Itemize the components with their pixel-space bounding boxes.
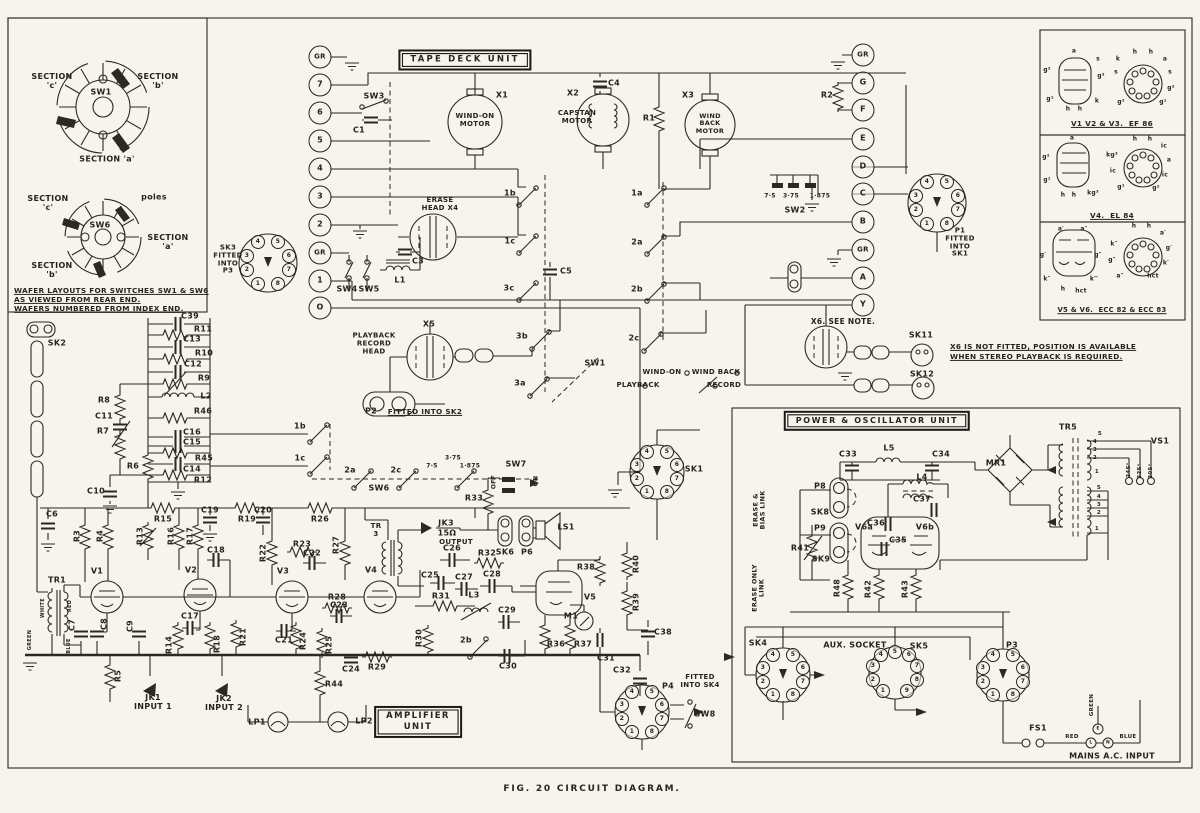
component-label: g¹ bbox=[1043, 178, 1051, 185]
component-label: 3 bbox=[866, 659, 880, 673]
component-label: C32 bbox=[613, 667, 631, 676]
component-label: hct bbox=[1075, 289, 1087, 296]
component-label: L4 bbox=[916, 474, 927, 483]
component-label: 2c bbox=[391, 467, 402, 476]
component-label: SECTION 'a' bbox=[79, 156, 134, 165]
component-label: R25 bbox=[326, 636, 335, 654]
component-label: poles bbox=[141, 194, 167, 203]
component-label: ic bbox=[1161, 144, 1167, 151]
component-label: C18 bbox=[207, 547, 225, 556]
component-label: PLAYBACK bbox=[616, 382, 659, 390]
component-label: ON bbox=[534, 476, 541, 487]
component-label: GR bbox=[309, 46, 332, 69]
component-label: R22 bbox=[260, 544, 269, 562]
component-label: R21 bbox=[240, 628, 249, 646]
component-label: SECTION 'a' bbox=[147, 234, 188, 252]
component-label: C7 bbox=[69, 619, 78, 631]
component-label: R12 bbox=[194, 477, 212, 486]
component-label: C28 bbox=[483, 571, 501, 580]
component-label: WAFER LAYOUTS FOR SWITCHES SW1 & SW6 bbox=[14, 287, 209, 295]
component-label: 5 bbox=[940, 175, 954, 189]
component-label: SK9 bbox=[812, 556, 830, 565]
component-label: g″ bbox=[1094, 253, 1102, 260]
component-label: R36 bbox=[547, 641, 565, 650]
component-label: SK4 bbox=[749, 640, 767, 649]
component-label: SK1 bbox=[685, 466, 703, 475]
component-label: 7 bbox=[1016, 675, 1030, 689]
component-label: C bbox=[852, 183, 875, 206]
component-label: h bbox=[1148, 137, 1153, 144]
component-label: V1 bbox=[91, 568, 103, 577]
component-label: g¹ bbox=[1159, 100, 1167, 107]
component-label: k″ bbox=[1110, 242, 1117, 249]
component-label: g³ bbox=[1097, 74, 1105, 81]
component-label: R44 bbox=[325, 681, 343, 690]
component-label: ERASE ONLY LINK bbox=[752, 564, 767, 612]
component-label: B bbox=[852, 211, 875, 234]
component-label: C25 bbox=[421, 572, 439, 581]
component-label: SK6 bbox=[496, 549, 514, 558]
component-label: R5 bbox=[115, 670, 124, 682]
component-label: L5 bbox=[883, 445, 894, 454]
component-label: 1 bbox=[766, 688, 780, 702]
component-label: WIND BACK bbox=[692, 369, 740, 377]
component-label: R2 bbox=[821, 92, 833, 101]
component-label: C12 bbox=[184, 361, 202, 370]
component-label: WIND BACK MOTOR bbox=[696, 113, 724, 135]
component-label: MAINS A.C. INPUT bbox=[1069, 753, 1155, 762]
component-label: V5 & V6. ECC 82 & ECC 83 bbox=[1057, 307, 1166, 315]
tape-deck-unit-title: TAPE DECK UNIT bbox=[398, 49, 531, 70]
component-label: X6. SEE NOTE. bbox=[811, 318, 875, 326]
component-label: P6 bbox=[521, 549, 533, 558]
component-label: V5 bbox=[584, 594, 596, 603]
component-label: 6 bbox=[951, 189, 965, 203]
component-label: 3 bbox=[615, 698, 629, 712]
component-label: 8 bbox=[910, 673, 924, 687]
component-label: a bbox=[1167, 158, 1171, 165]
component-label: WIND-ON bbox=[643, 369, 682, 377]
component-label: 3·75 bbox=[445, 456, 461, 463]
component-label: k″ bbox=[1043, 277, 1050, 284]
component-label: C22 bbox=[303, 550, 321, 559]
component-label: h bbox=[1133, 50, 1138, 57]
component-label: E bbox=[1093, 724, 1104, 735]
component-label: g¹ bbox=[1117, 185, 1125, 192]
component-label: C29 bbox=[498, 607, 516, 616]
component-label: L bbox=[1086, 738, 1097, 749]
component-label: 1 bbox=[876, 684, 890, 698]
component-label: 1 bbox=[920, 217, 934, 231]
component-label: 2 bbox=[756, 675, 770, 689]
component-label: g² bbox=[1152, 186, 1160, 193]
component-label: C27 bbox=[455, 574, 473, 583]
component-label: g¹ bbox=[1046, 97, 1054, 104]
component-label: V2 bbox=[185, 567, 197, 576]
component-label: L2 bbox=[200, 393, 211, 402]
component-label: SK2 bbox=[48, 340, 66, 349]
component-label: 8 bbox=[786, 688, 800, 702]
component-label: BLUE bbox=[1120, 734, 1137, 740]
component-label: A bbox=[852, 267, 875, 290]
component-label: C13 bbox=[183, 336, 201, 345]
component-label: O bbox=[309, 297, 332, 320]
component-label: P2 bbox=[365, 408, 377, 417]
component-label: LP2 bbox=[355, 718, 372, 727]
component-label: C37 bbox=[913, 496, 931, 505]
component-label: AS VIEWED FROM REAR END. bbox=[14, 296, 141, 304]
component-label: 8 bbox=[645, 725, 659, 739]
component-label: SK8 bbox=[811, 509, 829, 518]
component-label: FITTED INTO SK4 bbox=[680, 674, 719, 690]
component-label: 2 bbox=[630, 472, 644, 486]
component-label: P9 bbox=[814, 525, 826, 534]
component-label: R14 bbox=[166, 636, 175, 654]
component-label: OFF bbox=[492, 475, 499, 489]
component-label: 6 bbox=[309, 102, 332, 125]
component-label: C26 bbox=[443, 545, 461, 554]
component-label: 2b bbox=[631, 286, 643, 295]
component-label: SK12 bbox=[910, 371, 934, 380]
component-label: h bbox=[1078, 107, 1083, 114]
component-label: R18 bbox=[214, 635, 223, 653]
component-label: 2 bbox=[240, 263, 254, 277]
component-label: 3 bbox=[309, 186, 332, 209]
component-label: GR bbox=[309, 242, 332, 265]
component-label: 7 bbox=[282, 263, 296, 277]
component-label: 205ᵛ bbox=[1148, 463, 1154, 478]
component-label: SK3 FITTED INTO P3 bbox=[213, 244, 243, 275]
component-label: g² bbox=[1117, 100, 1125, 107]
component-label: s bbox=[1114, 70, 1118, 77]
component-label: 3 bbox=[976, 661, 990, 675]
component-label: GREEN bbox=[28, 630, 34, 650]
component-label: C24 bbox=[342, 666, 360, 675]
component-label: R11 bbox=[194, 326, 212, 335]
component-label: R17 bbox=[187, 527, 196, 545]
component-label: R29 bbox=[368, 664, 386, 673]
component-label: LP1 bbox=[248, 719, 265, 728]
component-label: 1 bbox=[1095, 526, 1099, 532]
component-label: 3·75 bbox=[783, 194, 799, 201]
component-label: kg³ bbox=[1087, 191, 1099, 198]
component-label: 2 bbox=[909, 203, 923, 217]
component-label: 4 bbox=[625, 685, 639, 699]
component-label: WAFERS NUMBERED FROM INDEX END. bbox=[14, 305, 184, 313]
component-label: 1c bbox=[295, 455, 306, 464]
component-label: L1 bbox=[394, 277, 405, 286]
component-label: 9 bbox=[900, 684, 914, 698]
component-label: C23 bbox=[330, 602, 348, 611]
component-label: h bbox=[1061, 193, 1066, 200]
component-label: P1 FITTED INTO SK1 bbox=[945, 227, 975, 258]
component-label: 5 bbox=[786, 648, 800, 662]
component-label: 5 bbox=[888, 645, 902, 659]
component-label: 1 bbox=[625, 725, 639, 739]
component-label: 2b bbox=[460, 637, 472, 646]
component-label: ic bbox=[1162, 173, 1168, 180]
component-label: R1 bbox=[643, 115, 655, 124]
component-label: h bbox=[1132, 224, 1137, 231]
component-label: R45 bbox=[195, 455, 213, 464]
component-label: C10 bbox=[87, 488, 105, 497]
component-label: TR5 bbox=[1059, 424, 1077, 433]
component-label: C35 bbox=[889, 537, 907, 546]
component-label: 7·5 bbox=[764, 194, 776, 201]
component-label: C38 bbox=[654, 629, 672, 638]
component-label: 3 bbox=[756, 661, 770, 675]
component-label: R41 bbox=[791, 545, 809, 554]
component-label: 7 bbox=[655, 712, 669, 726]
component-label: SW6 bbox=[368, 485, 389, 494]
component-label: RECORD bbox=[707, 382, 741, 390]
component-label: 4 bbox=[640, 445, 654, 459]
component-label: C1 bbox=[353, 127, 365, 136]
component-label: C31 bbox=[597, 655, 615, 664]
component-label: 2 bbox=[976, 675, 990, 689]
component-label: SECTION 'b' bbox=[31, 262, 72, 280]
component-label: FITTED INTO SK2 bbox=[388, 408, 462, 416]
component-label: a″ bbox=[1116, 274, 1123, 281]
component-label: 7 bbox=[910, 659, 924, 673]
component-label: C34 bbox=[932, 451, 950, 460]
component-label: a′ bbox=[1058, 227, 1064, 234]
component-label: 3 bbox=[1097, 502, 1101, 508]
component-label: g′ bbox=[1166, 246, 1172, 253]
figure-caption: FIG. 20 CIRCUIT DIAGRAM. bbox=[503, 784, 680, 794]
component-label: R31 bbox=[432, 593, 450, 602]
component-label: 3b bbox=[516, 333, 528, 342]
component-label: WIND-ON MOTOR bbox=[456, 113, 495, 129]
component-label: SW3 bbox=[363, 93, 384, 102]
component-label: C3 bbox=[412, 258, 424, 267]
component-label: R24 bbox=[300, 632, 309, 650]
component-label: C5 bbox=[560, 268, 572, 277]
component-label: 245ᵛ bbox=[1126, 462, 1132, 477]
component-label: hct bbox=[1147, 274, 1159, 281]
component-label: 8 bbox=[940, 217, 954, 231]
component-label: C8 bbox=[101, 618, 110, 630]
component-label: 7 bbox=[951, 203, 965, 217]
component-label: C14 bbox=[183, 466, 201, 475]
component-label: 2a bbox=[631, 239, 643, 248]
component-label: R7 bbox=[97, 428, 109, 437]
component-label: 4 bbox=[920, 175, 934, 189]
component-label: 4 bbox=[1093, 439, 1097, 445]
component-label: h bbox=[1149, 50, 1154, 57]
component-label: GREEN bbox=[1089, 694, 1095, 716]
component-label: R43 bbox=[902, 580, 911, 598]
component-label: GR bbox=[852, 44, 875, 67]
component-label: R16 bbox=[168, 527, 177, 545]
component-label: 3 bbox=[630, 458, 644, 472]
component-label: 6 bbox=[1016, 661, 1030, 675]
component-label: C15 bbox=[183, 439, 201, 448]
circuit-diagram-page: TAPE DECK UNIT POWER & OSCILLATOR UNIT A… bbox=[0, 0, 1200, 813]
component-label: 7 bbox=[796, 675, 810, 689]
component-label: V4. EL 84 bbox=[1090, 212, 1134, 220]
component-label: V1 V2 & V3. EF 86 bbox=[1071, 120, 1153, 128]
component-label: 8 bbox=[660, 485, 674, 499]
component-label: C21 bbox=[275, 637, 293, 646]
component-label: 1b bbox=[294, 423, 306, 432]
component-label: JK3 bbox=[438, 520, 454, 529]
component-label: 5 bbox=[660, 445, 674, 459]
component-label: JK2 INPUT 2 bbox=[205, 695, 243, 713]
component-label: 4 bbox=[986, 648, 1000, 662]
component-label: h bbox=[1061, 287, 1066, 294]
component-label: 5 bbox=[645, 685, 659, 699]
component-label: 5 bbox=[1097, 485, 1101, 491]
component-label: h bbox=[1066, 107, 1071, 114]
component-label: P4 bbox=[662, 683, 674, 692]
component-label: s bbox=[1168, 70, 1172, 77]
component-label: R4 bbox=[97, 530, 106, 542]
component-label: R28 bbox=[328, 594, 346, 603]
component-label: F bbox=[852, 99, 875, 122]
component-label: 8 bbox=[271, 277, 285, 291]
component-label: a bbox=[1163, 57, 1167, 64]
component-label: R3 bbox=[74, 530, 83, 542]
component-label: R30 bbox=[416, 629, 425, 647]
component-label: P8 bbox=[814, 483, 826, 492]
component-label: M1 bbox=[564, 613, 578, 622]
amplifier-unit-title: AMPLIFIER UNIT bbox=[374, 706, 462, 738]
component-label: R6 bbox=[127, 463, 139, 472]
component-label: g″ bbox=[1108, 258, 1116, 265]
component-label: 8 bbox=[1006, 688, 1020, 702]
component-label: 6 bbox=[796, 661, 810, 675]
component-label: 1a bbox=[631, 190, 643, 199]
component-label: 2c bbox=[629, 335, 640, 344]
component-label: TR 3 bbox=[371, 523, 382, 539]
component-label: V6b bbox=[916, 524, 934, 533]
component-label: SW1 bbox=[90, 89, 111, 98]
component-label: 7 bbox=[670, 472, 684, 486]
power-oscillator-unit-title: POWER & OSCILLATOR UNIT bbox=[784, 411, 970, 431]
component-label: 1 bbox=[309, 270, 332, 293]
component-label: BLUE bbox=[67, 638, 73, 654]
component-label: g² bbox=[1042, 155, 1050, 162]
component-label: g² bbox=[1043, 68, 1051, 75]
component-label: X2 bbox=[567, 90, 579, 99]
component-label: SW8 bbox=[694, 711, 715, 720]
component-label: 3 bbox=[909, 189, 923, 203]
component-label: R40 bbox=[633, 555, 642, 573]
component-label: 2 bbox=[615, 712, 629, 726]
component-label: a′ bbox=[1160, 231, 1166, 238]
component-label: R33 bbox=[465, 495, 483, 504]
component-label: GR bbox=[852, 239, 875, 262]
component-label: R32 bbox=[478, 550, 496, 559]
component-label: C30 bbox=[499, 663, 517, 672]
component-label: SECTION 'c' bbox=[27, 195, 68, 213]
component-label: 7·5 bbox=[426, 464, 438, 471]
component-label: FS1 bbox=[1029, 725, 1047, 734]
component-label: L3 bbox=[468, 592, 479, 601]
component-label: 4 bbox=[251, 235, 265, 249]
component-label: 5 bbox=[309, 130, 332, 153]
component-label: k bbox=[1116, 57, 1120, 64]
component-label: Y bbox=[852, 294, 875, 317]
component-label: SK11 bbox=[909, 332, 933, 341]
component-label: SECTION 'b' bbox=[137, 73, 178, 91]
component-label: C17 bbox=[181, 613, 199, 622]
component-label: ERASE HEAD X4 bbox=[422, 197, 459, 213]
component-label: SW1 bbox=[584, 360, 605, 369]
component-label: R26 bbox=[311, 516, 329, 525]
component-label: C4 bbox=[608, 80, 620, 89]
component-label: R9 bbox=[198, 375, 210, 384]
component-label: SECTION 'c' bbox=[31, 73, 72, 91]
component-label: 5 bbox=[1006, 648, 1020, 662]
component-label: VS1 bbox=[1151, 438, 1169, 447]
component-label: h bbox=[1147, 224, 1152, 231]
component-label: k′ bbox=[1163, 261, 1169, 268]
component-label: C11 bbox=[95, 413, 113, 422]
component-label: h bbox=[1133, 137, 1138, 144]
component-label: E bbox=[852, 128, 875, 151]
component-label: 1b bbox=[504, 190, 516, 199]
component-label: SW6 bbox=[89, 222, 110, 231]
component-label: h bbox=[1072, 193, 1077, 200]
component-label: JK1 INPUT 1 bbox=[134, 694, 172, 712]
component-label: PLAYBACK RECORD HEAD bbox=[352, 332, 395, 355]
component-label: LS1 bbox=[557, 524, 574, 533]
component-label: N bbox=[1103, 738, 1114, 749]
component-label: 1 bbox=[640, 485, 654, 499]
component-label: RED bbox=[1065, 734, 1078, 740]
component-label: R10 bbox=[195, 350, 213, 359]
component-label: 6 bbox=[282, 249, 296, 263]
component-label: 2 bbox=[1097, 510, 1101, 516]
label-layer: TAPE DECK UNIT POWER & OSCILLATOR UNIT A… bbox=[0, 0, 1200, 813]
component-label: 3 bbox=[1093, 447, 1097, 453]
component-label: 5 bbox=[1098, 431, 1102, 437]
component-label: 1 bbox=[1095, 469, 1099, 475]
component-label: R13 bbox=[137, 527, 146, 545]
component-label: 2 bbox=[1093, 455, 1097, 461]
component-label: 4 bbox=[309, 158, 332, 181]
component-label: R37 bbox=[574, 641, 592, 650]
component-label: V6a bbox=[855, 524, 873, 533]
component-label: X3 bbox=[682, 92, 694, 101]
component-label: 1·875 bbox=[810, 194, 830, 201]
component-label: a bbox=[1072, 49, 1076, 56]
component-label: 3a bbox=[514, 380, 526, 389]
component-label: C16 bbox=[183, 429, 201, 438]
component-label: C19 bbox=[201, 507, 219, 516]
component-label: 1·875 bbox=[460, 464, 480, 471]
component-label: SW5 bbox=[358, 286, 379, 295]
component-label: 2a bbox=[344, 467, 356, 476]
component-label: k bbox=[1095, 99, 1099, 106]
component-label: V4 bbox=[365, 567, 377, 576]
component-label: a″ bbox=[1080, 227, 1087, 234]
component-label: 3 bbox=[240, 249, 254, 263]
component-label: X1 bbox=[496, 92, 508, 101]
component-label: 3c bbox=[504, 285, 515, 294]
component-label: 7 bbox=[309, 74, 332, 97]
component-label: 4 bbox=[766, 648, 780, 662]
component-label: C33 bbox=[839, 451, 857, 460]
component-label: R8 bbox=[98, 397, 110, 406]
component-label: TR1 bbox=[48, 577, 66, 586]
component-label: ic bbox=[1110, 169, 1116, 176]
component-label: R48 bbox=[834, 579, 843, 597]
component-label: k‴ bbox=[1090, 277, 1098, 284]
component-label: 4 bbox=[1097, 494, 1101, 500]
